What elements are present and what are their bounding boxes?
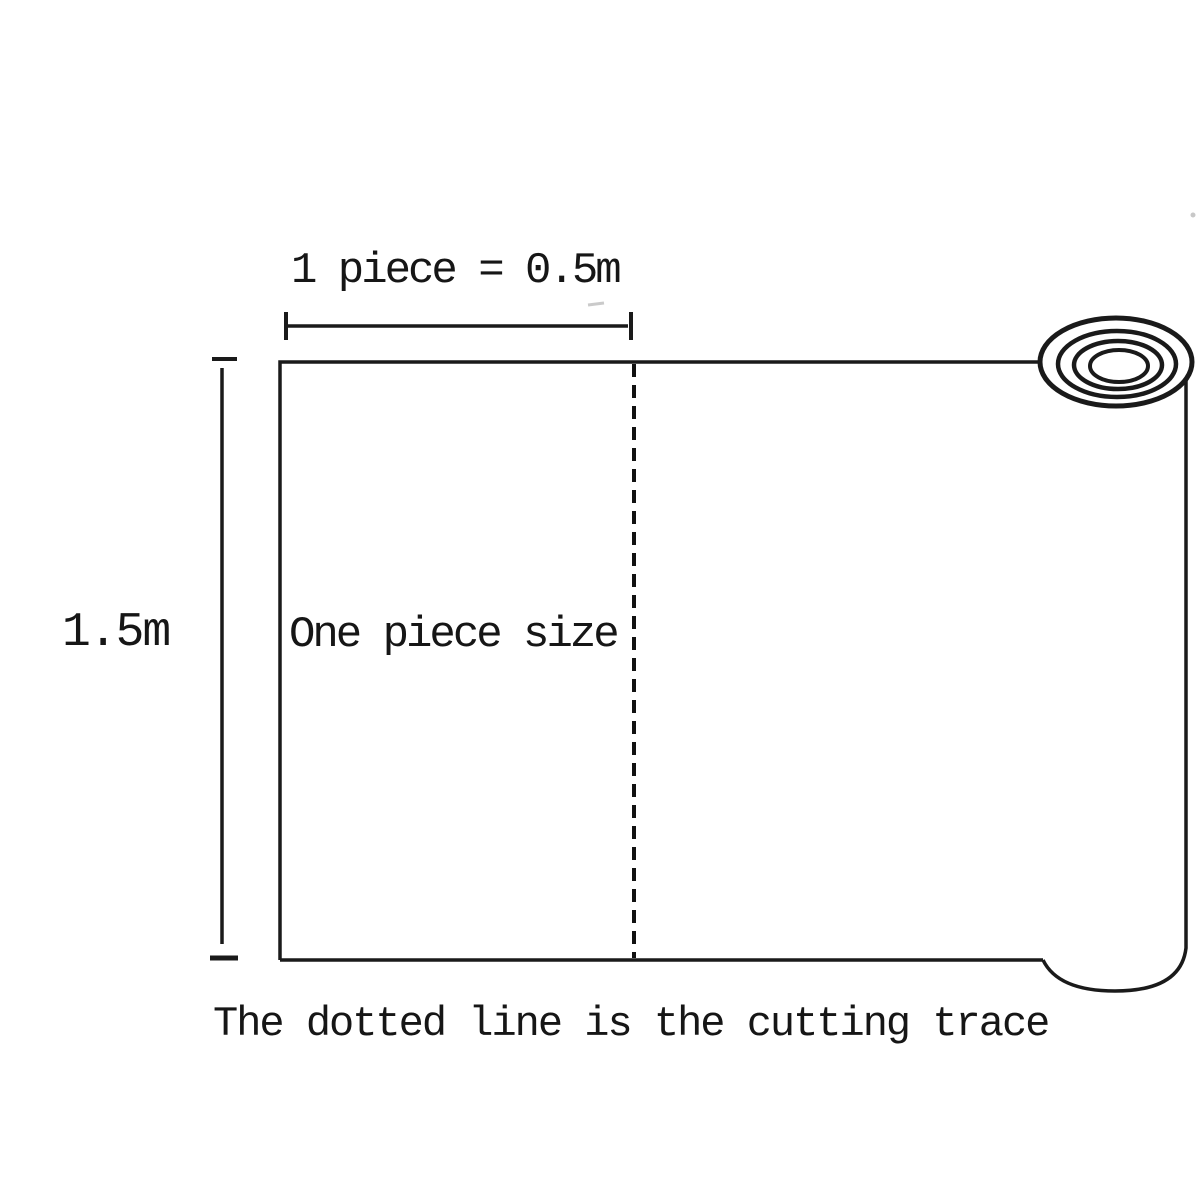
sheet-roll-underhang-edge <box>1043 374 1186 991</box>
piece-size-label: One piece size <box>289 610 617 660</box>
roll-cutting-diagram: 1 piece = 0.5m 1.5m One piece size The d… <box>0 0 1200 1200</box>
artifact-gray-dot <box>1191 213 1196 218</box>
artifact-gray-dash <box>588 303 604 305</box>
top-dimension-label: 1 piece = 0.5m <box>291 246 619 296</box>
roll-ellipse-core <box>1090 350 1148 382</box>
caption-text: The dotted line is the cutting trace <box>213 1000 1048 1048</box>
height-dimension-label: 1.5m <box>62 606 169 660</box>
sheet-top-left-edges <box>280 362 1041 960</box>
